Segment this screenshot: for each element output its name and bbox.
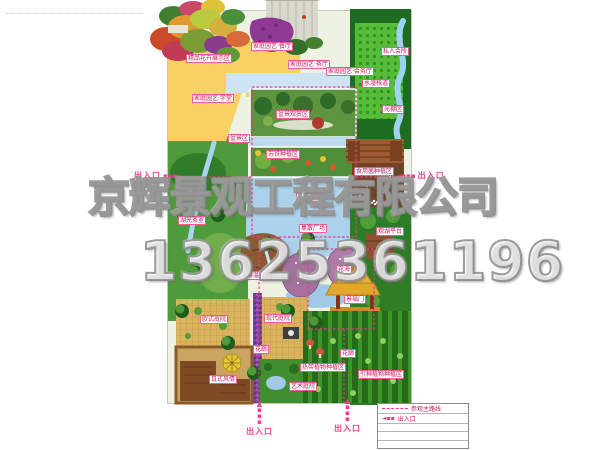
legend-entrance-label: 出入口 (398, 414, 416, 423)
area-label: 湖光茶室 (178, 216, 206, 225)
area-label: 家庭园艺·学堂 (192, 94, 234, 103)
entrance-arrow-icon: ▲▪▪▪ (345, 398, 350, 422)
area-label: 怡人景苑 (296, 193, 324, 202)
area-label: 家庭园艺·餐厅 (251, 42, 293, 51)
area-label: 组培温室 (239, 271, 267, 280)
area-label: 引种植物种植区 (358, 370, 404, 379)
entrance-label: 出入口 (134, 170, 161, 181)
area-label: 热带植物种植区 (300, 363, 346, 372)
legend-row-entrance: ◄▪▪ 出入口 (378, 414, 468, 424)
area-label: 私人会所 (381, 47, 409, 56)
area-label: 景福门 (344, 295, 366, 304)
area-label: 精品花卉展示区 (186, 54, 232, 63)
area-label: 日式风情 (209, 375, 237, 384)
area-label: 花海 (336, 265, 352, 274)
area-label: 家庭园艺·茶厅 (288, 60, 330, 69)
garden-map: 精品花卉展示区家庭园艺·餐厅家庭园艺·茶厅家庭园艺·会务厅私人会所水漫栈道家庭园… (167, 10, 412, 404)
entrance-right: ◄▪▪▪出入口 (396, 170, 445, 181)
area-label: 水漫栈道 (362, 79, 390, 88)
area-label: 观湖平台 (376, 227, 404, 236)
entrance-label: 出入口 (418, 170, 445, 181)
area-label: 光棚区 (382, 105, 404, 114)
entrance-left: 出入口▪▪▪► (134, 170, 183, 181)
entrance-arrow-icon: ◄▪▪▪ (396, 173, 416, 179)
legend-row-route: 参观主路线 (378, 404, 468, 414)
entrance-bottom-left: ▲▪▪▪出入口 (246, 401, 273, 437)
area-label: 苏铁种植区 (266, 150, 300, 159)
legend-row-empty (378, 441, 468, 448)
area-label: 家庭园艺·会务厅 (326, 67, 374, 76)
entrance-label: 出入口 (334, 423, 361, 434)
entrance-arrow-icon: ▪▪▪► (163, 173, 183, 179)
legend-row-empty (378, 432, 468, 440)
dotted-guide (6, 13, 144, 14)
area-label: 欧式庭院 (200, 315, 228, 324)
area-label: 花廊 (340, 349, 356, 358)
legend-row-empty (378, 424, 468, 432)
area-label: 食用菌种植区 (354, 167, 394, 176)
legend-route-symbol (382, 408, 408, 409)
area-label: 盆景观赏区 (276, 110, 310, 119)
page-canvas: 精品花卉展示区家庭园艺·餐厅家庭园艺·茶厅家庭园艺·会务厅私人会所水漫栈道家庭园… (0, 0, 600, 450)
area-label: 集散广场 (299, 224, 327, 233)
legend-entrance-arrow-icon: ◄▪▪ (382, 415, 395, 422)
entrance-label: 出入口 (246, 426, 273, 437)
entrance-bottom-right: ▲▪▪▪出入口 (334, 398, 361, 434)
area-label: 盆景区 (228, 134, 250, 143)
map-label-layer: 精品花卉展示区家庭园艺·餐厅家庭园艺·茶厅家庭园艺·会务厅私人会所水漫栈道家庭园… (168, 11, 411, 403)
legend-route-label: 参观主路线 (411, 404, 441, 413)
area-label: 花廊 (253, 345, 269, 354)
entrance-arrow-icon: ▲▪▪▪ (257, 401, 262, 425)
area-label: 艺术庭院 (289, 382, 317, 391)
area-label: 现代庭院 (264, 314, 292, 323)
legend-box: 参观主路线 ◄▪▪ 出入口 (377, 403, 469, 449)
